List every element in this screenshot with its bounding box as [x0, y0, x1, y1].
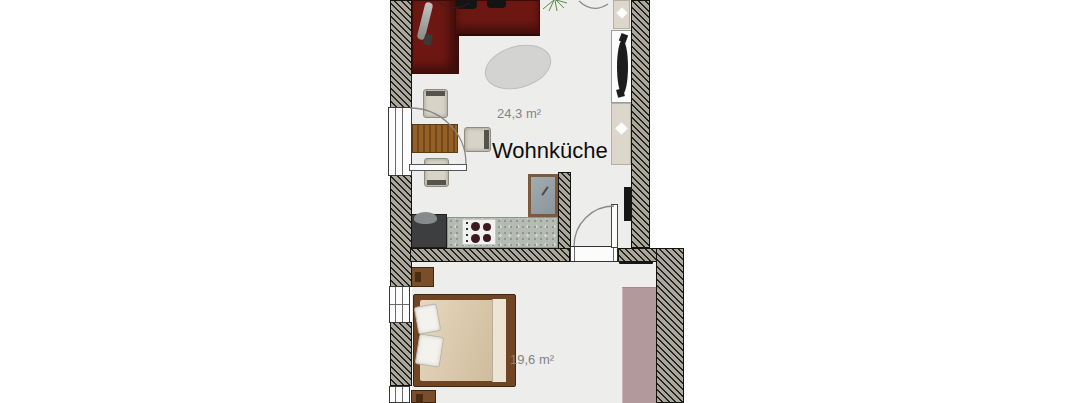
- pillow: [414, 303, 442, 335]
- chair-top: [423, 89, 448, 118]
- nightstand-bottom: [411, 390, 436, 403]
- dark-unit-sink-curve: [414, 212, 437, 224]
- wall-left-lower: [390, 322, 412, 386]
- radiator-shelf-top: [613, 0, 630, 29]
- window-bedroom-upper: [389, 286, 410, 323]
- wohnkueche-room-label: Wohnküche: [492, 138, 608, 164]
- chair-bottom: [424, 158, 449, 187]
- dining-table: [412, 124, 458, 153]
- stove-knob: [466, 234, 468, 236]
- wall-left-upper: [390, 0, 412, 108]
- interior-door-leaf: [611, 204, 618, 248]
- pillow: [415, 333, 445, 368]
- window-bedroom-lower: [389, 386, 410, 403]
- radiator-shelf-bottom: [611, 103, 631, 165]
- nightstand-top: [411, 267, 434, 287]
- bedroom-area-label: 19,6 m²: [510, 352, 554, 367]
- wohnkueche-area-label: 24,3 m²: [497, 106, 541, 121]
- balcony-door-leaf: [409, 164, 467, 171]
- wall-left-mid: [390, 175, 412, 287]
- stove-knob: [466, 222, 468, 224]
- sofa-cushion: [487, 0, 506, 8]
- shelf-diamond: [615, 122, 628, 135]
- burner: [483, 223, 491, 231]
- blanket-fold: [492, 299, 506, 382]
- burner: [471, 234, 480, 243]
- stove-knob: [466, 240, 468, 242]
- wall-divider-left: [410, 248, 570, 262]
- floorplan-canvas: 24,3 m² Wohnküche 19,6 m²: [0, 0, 1069, 403]
- wall-right-bedroom: [656, 248, 684, 403]
- wall-kitchen-stub: [558, 172, 571, 249]
- wall-panel-dark: [624, 187, 631, 221]
- wardrobe: [622, 287, 656, 403]
- stove-knob: [466, 228, 468, 230]
- shelf-diamond: [616, 7, 627, 18]
- burner: [471, 222, 480, 231]
- chair-right: [464, 127, 491, 152]
- burner: [483, 234, 491, 242]
- door-threshold: [570, 246, 618, 262]
- sofa-cushion: [456, 0, 477, 9]
- wall-right-wohnkueche: [631, 0, 650, 248]
- radiator-dark: [617, 40, 628, 94]
